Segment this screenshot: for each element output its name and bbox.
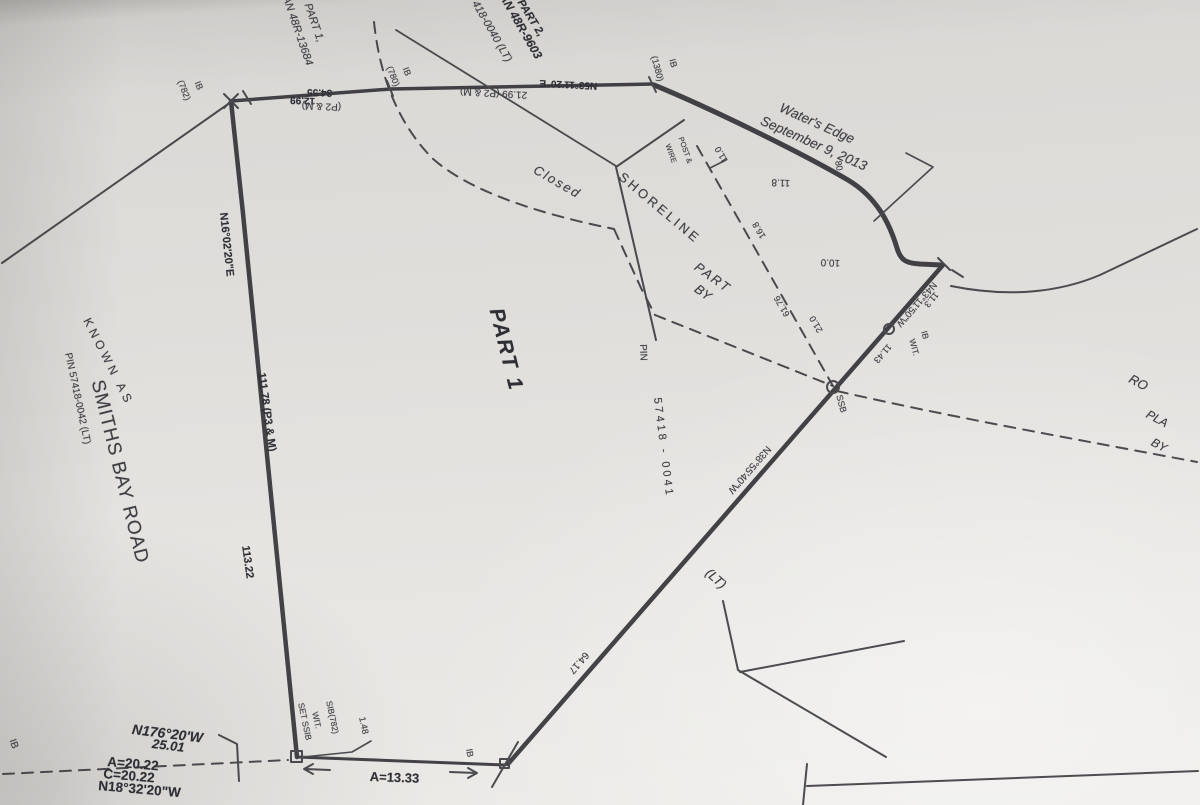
label-dist-3455: 34.55 [307,86,332,97]
southeast-chevron-b [740,641,904,672]
tie-148-leader [303,741,371,757]
southeast-chevron-a [723,601,886,757]
tick-east-line-b [952,270,963,277]
road-west-edge-line [2,102,231,263]
n176-bracket [219,735,239,781]
label-tie-100: 10.0 [821,256,841,267]
label-p2m-west: (P2 & M) [302,100,342,111]
linework-group [2,22,1198,805]
label-dist-2501: 25.01 [151,737,185,754]
label-tie-118: 11.8 [771,176,790,187]
label-dist-2199: 21.99 (P2 & M) [460,85,528,99]
south-arrow-right [450,768,477,778]
tick-nw [243,91,251,104]
dashed-ties-line [697,146,833,386]
survey-linework [0,0,1200,805]
bottom-right-edge-b [807,771,1198,786]
right-shore-extension-line [951,229,1197,292]
label-pt-80: 80 [833,160,844,171]
label-wit-sw: WIT. [311,711,323,729]
survey-plan-photo: PART 1, PLAN 48R-13684 PIN 57418-0040 (L… [0,0,1200,805]
label-ib-ne: IB [667,58,678,69]
south-boundary-line [297,757,505,765]
label-bearing-n53: N53°11'20"E [539,77,597,90]
label-arc-1333: A=13.33 [370,770,420,785]
south-arrow-left [304,764,330,774]
label-pin-arrow: PIN [637,344,648,361]
dashed-mid-line [614,229,833,386]
dashed-lower-right-line [837,391,1197,462]
bottom-right-edge-a [803,764,807,805]
east-boundary-line [508,265,943,764]
label-ib-se: IB [464,748,474,758]
